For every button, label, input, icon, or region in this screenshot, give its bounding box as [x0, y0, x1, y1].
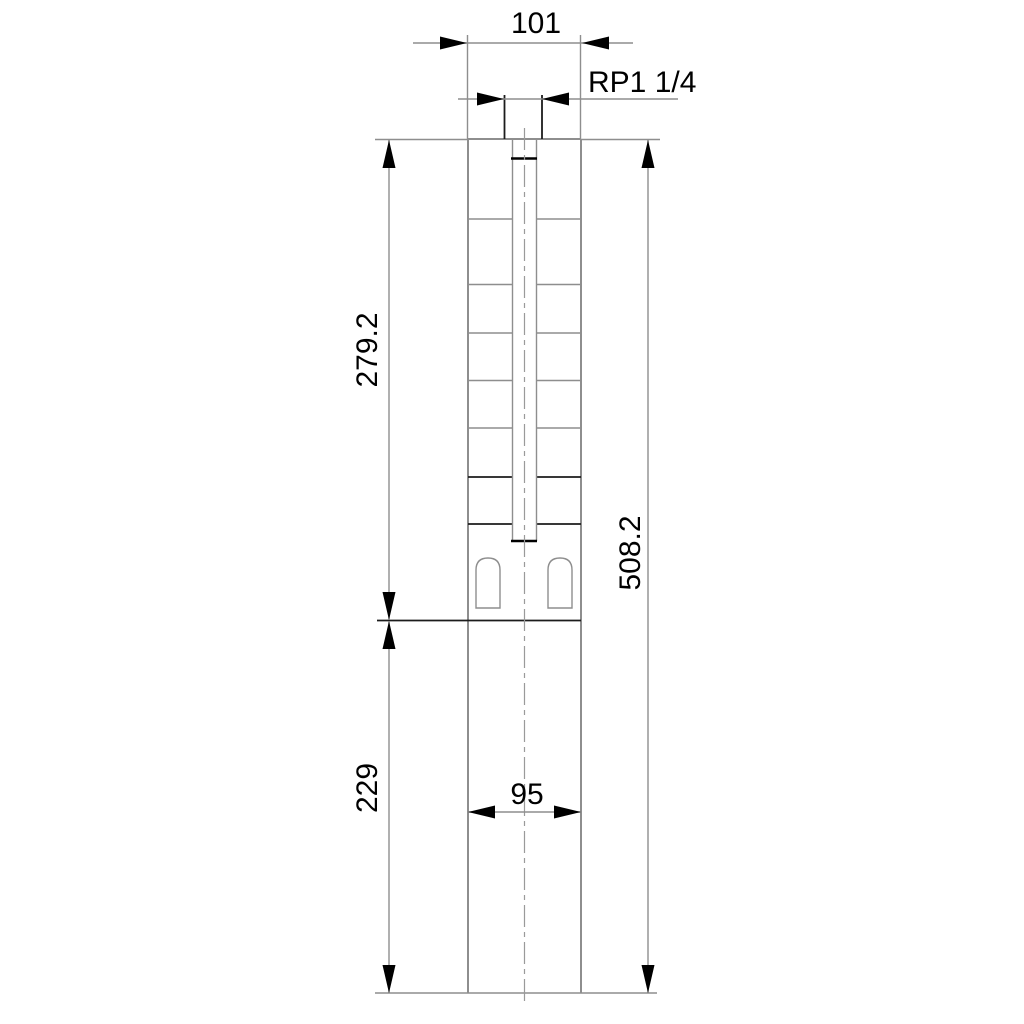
- arrow-up-icon: [642, 140, 655, 168]
- dim-label-lower-width: 95: [510, 778, 543, 811]
- dim-label-upper-section: 279.2: [351, 312, 384, 387]
- drawing-canvas: 101 RP1 1/4 279.2 229 508.2 95: [0, 0, 1024, 1024]
- arrow-right-icon: [554, 806, 581, 819]
- arrow-down-icon: [383, 592, 396, 620]
- dimension-lower-width: 95: [468, 778, 581, 819]
- dimension-thread: RP1 1/4: [458, 66, 696, 106]
- arrow-left-icon: [468, 806, 495, 819]
- pump-dimension-drawing: 101 RP1 1/4 279.2 229 508.2 95: [0, 0, 1024, 1024]
- arrow-down-icon: [642, 965, 655, 993]
- arrow-right-icon: [477, 93, 504, 106]
- arrow-up-icon: [383, 140, 396, 168]
- dimension-total-height: 508.2: [614, 140, 655, 993]
- arrow-left-icon: [542, 93, 569, 106]
- arrow-up-icon: [383, 621, 396, 649]
- dimension-upper-section: 279.2: [351, 140, 396, 620]
- arrow-down-icon: [383, 965, 396, 993]
- dimension-lower-section: 229: [351, 621, 396, 993]
- dim-label-top-width: 101: [511, 7, 561, 40]
- dim-label-lower-section: 229: [351, 763, 384, 813]
- discharge-port-extension-lines: [505, 95, 543, 139]
- cable-guard-slot-left: [476, 558, 500, 608]
- dim-label-total-height: 508.2: [614, 515, 647, 590]
- arrow-right-icon: [440, 37, 467, 50]
- arrow-left-icon: [582, 37, 609, 50]
- dim-label-thread: RP1 1/4: [588, 66, 696, 99]
- cable-guard-slot-right: [548, 558, 572, 608]
